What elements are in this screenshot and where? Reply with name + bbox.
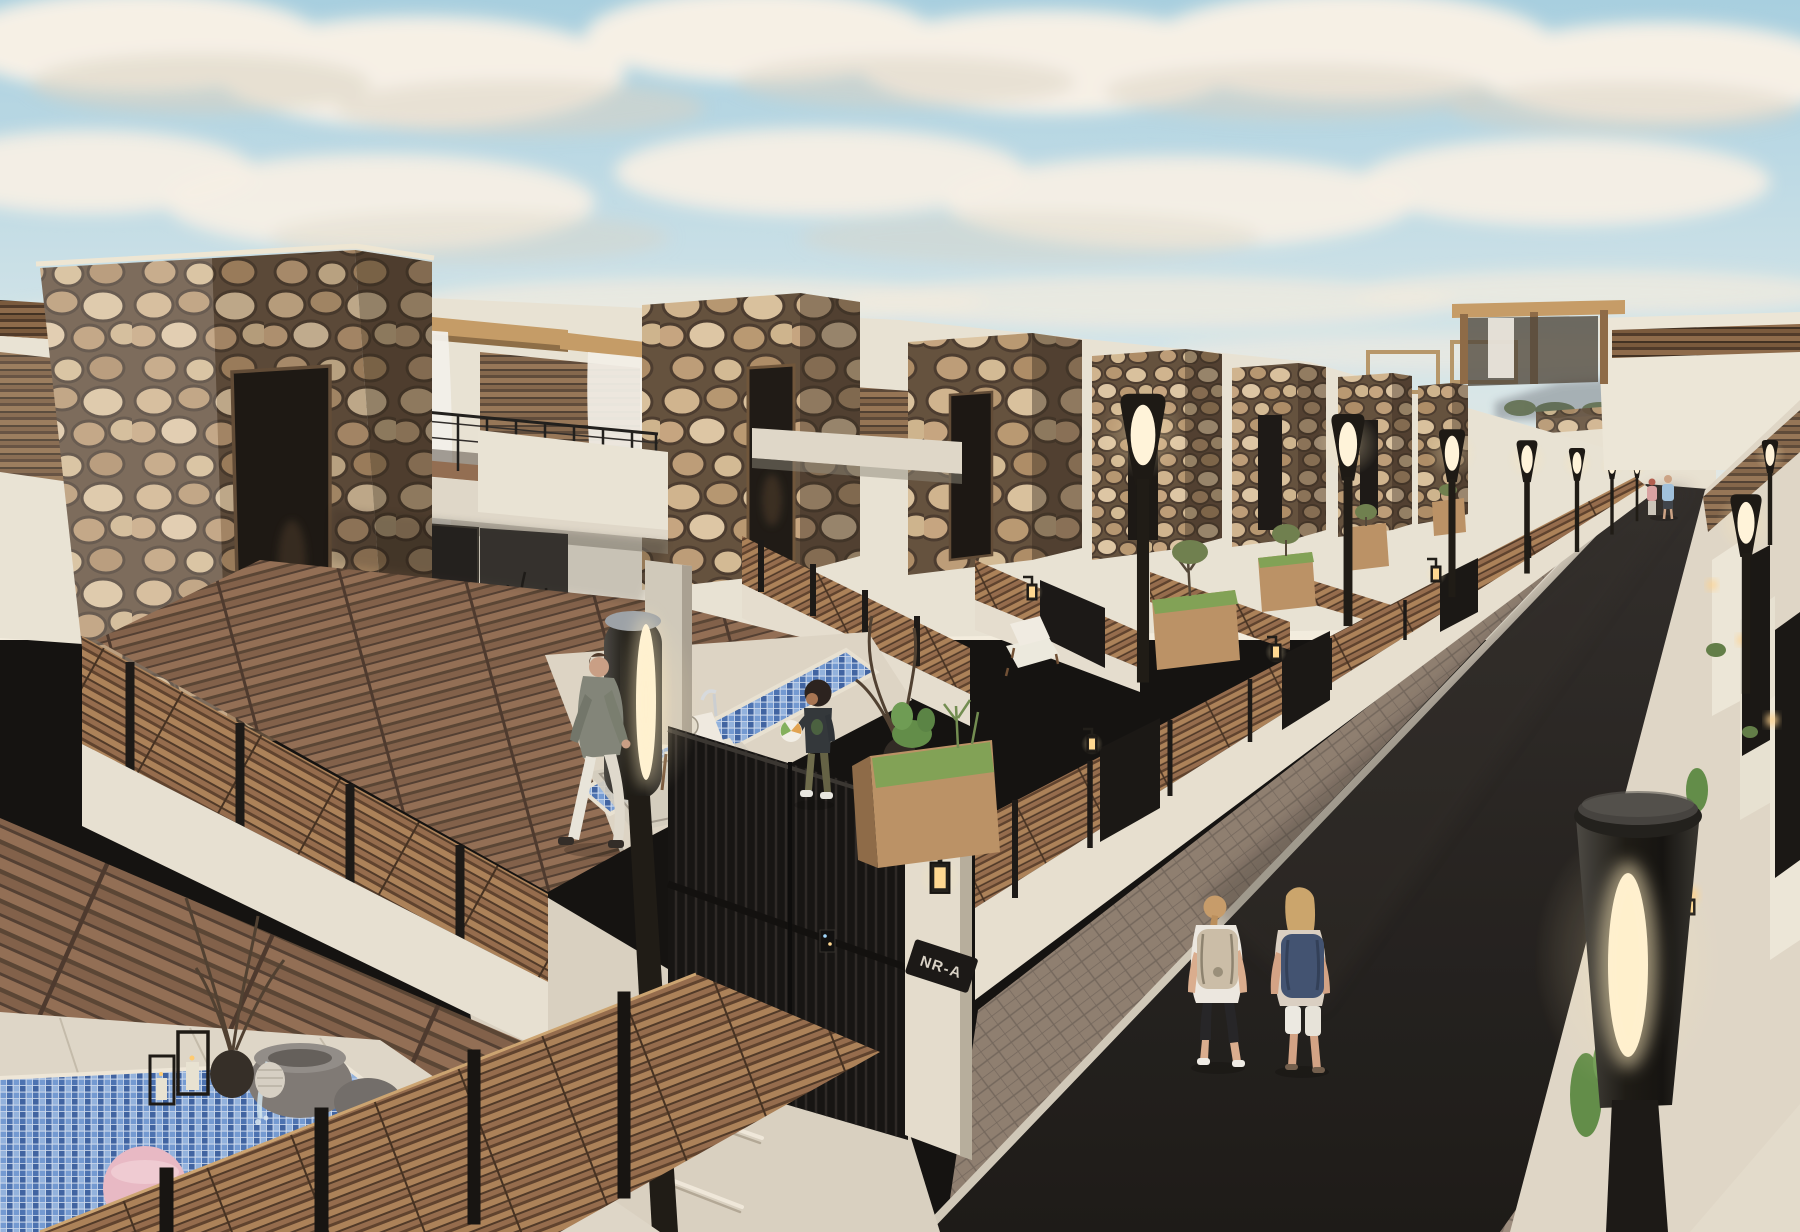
villa-street-render: NR-A bbox=[0, 0, 1800, 1232]
warm-tint-overlay bbox=[0, 0, 1800, 1232]
render-canvas: NR-A bbox=[0, 0, 1800, 1232]
